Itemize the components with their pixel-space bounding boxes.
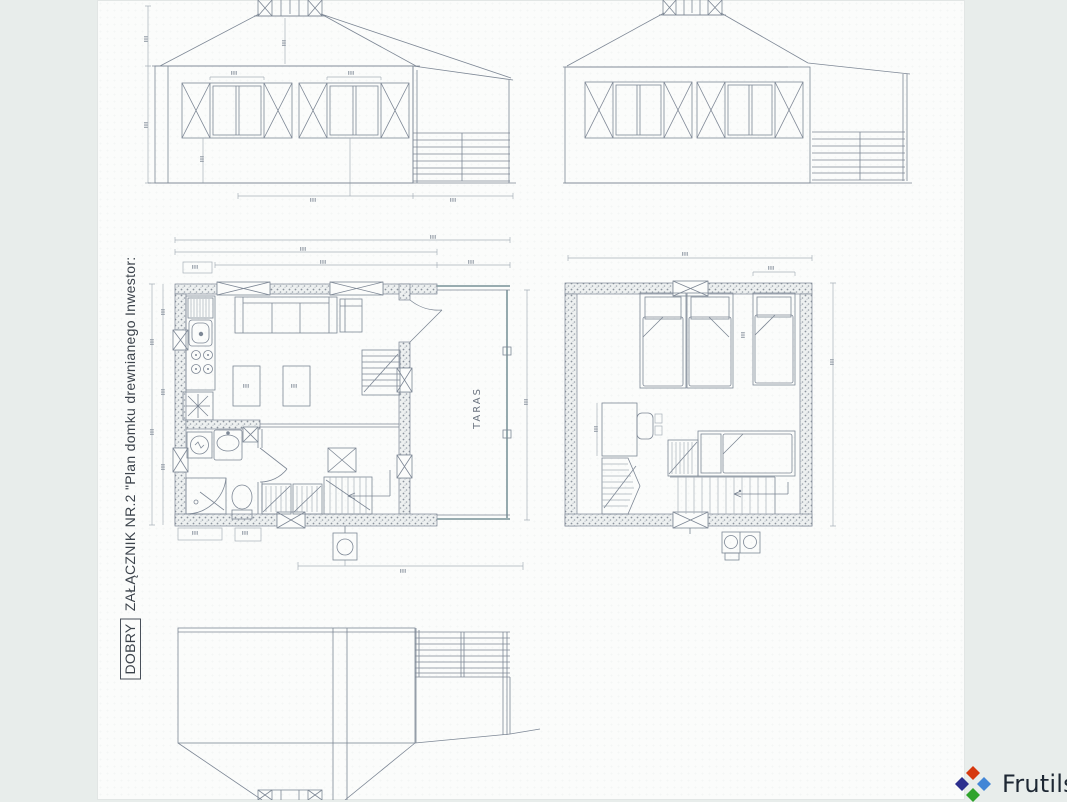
logo-diamond-right	[977, 777, 991, 791]
stamp-boxed-word: DOBRY	[120, 618, 141, 679]
logo-diamond-left	[955, 777, 969, 791]
frutils-logo-text: Frutils	[1002, 770, 1067, 798]
frutils-logo: Frutils	[953, 765, 1067, 802]
front-elevation-right	[563, 0, 912, 183]
rear-elevation	[178, 628, 540, 800]
scanned-plan-page: TARAS	[0, 0, 1067, 800]
ground-floor-plan: TARAS	[149, 235, 530, 573]
terrace-label: TARAS	[472, 387, 483, 430]
logo-diamond-top	[966, 766, 980, 780]
frutils-logo-icon	[953, 765, 993, 802]
architectural-drawing: TARAS	[0, 0, 1067, 800]
stamp-annotation: DOBRY ZAŁĄCZNIK NR.2 "Plan domku drewnia…	[122, 257, 138, 680]
front-elevation-left	[144, 0, 516, 202]
stamp-text: ZAŁĄCZNIK NR.2 "Plan domku drewnianego I…	[122, 257, 138, 612]
upper-floor-plan	[565, 252, 836, 560]
